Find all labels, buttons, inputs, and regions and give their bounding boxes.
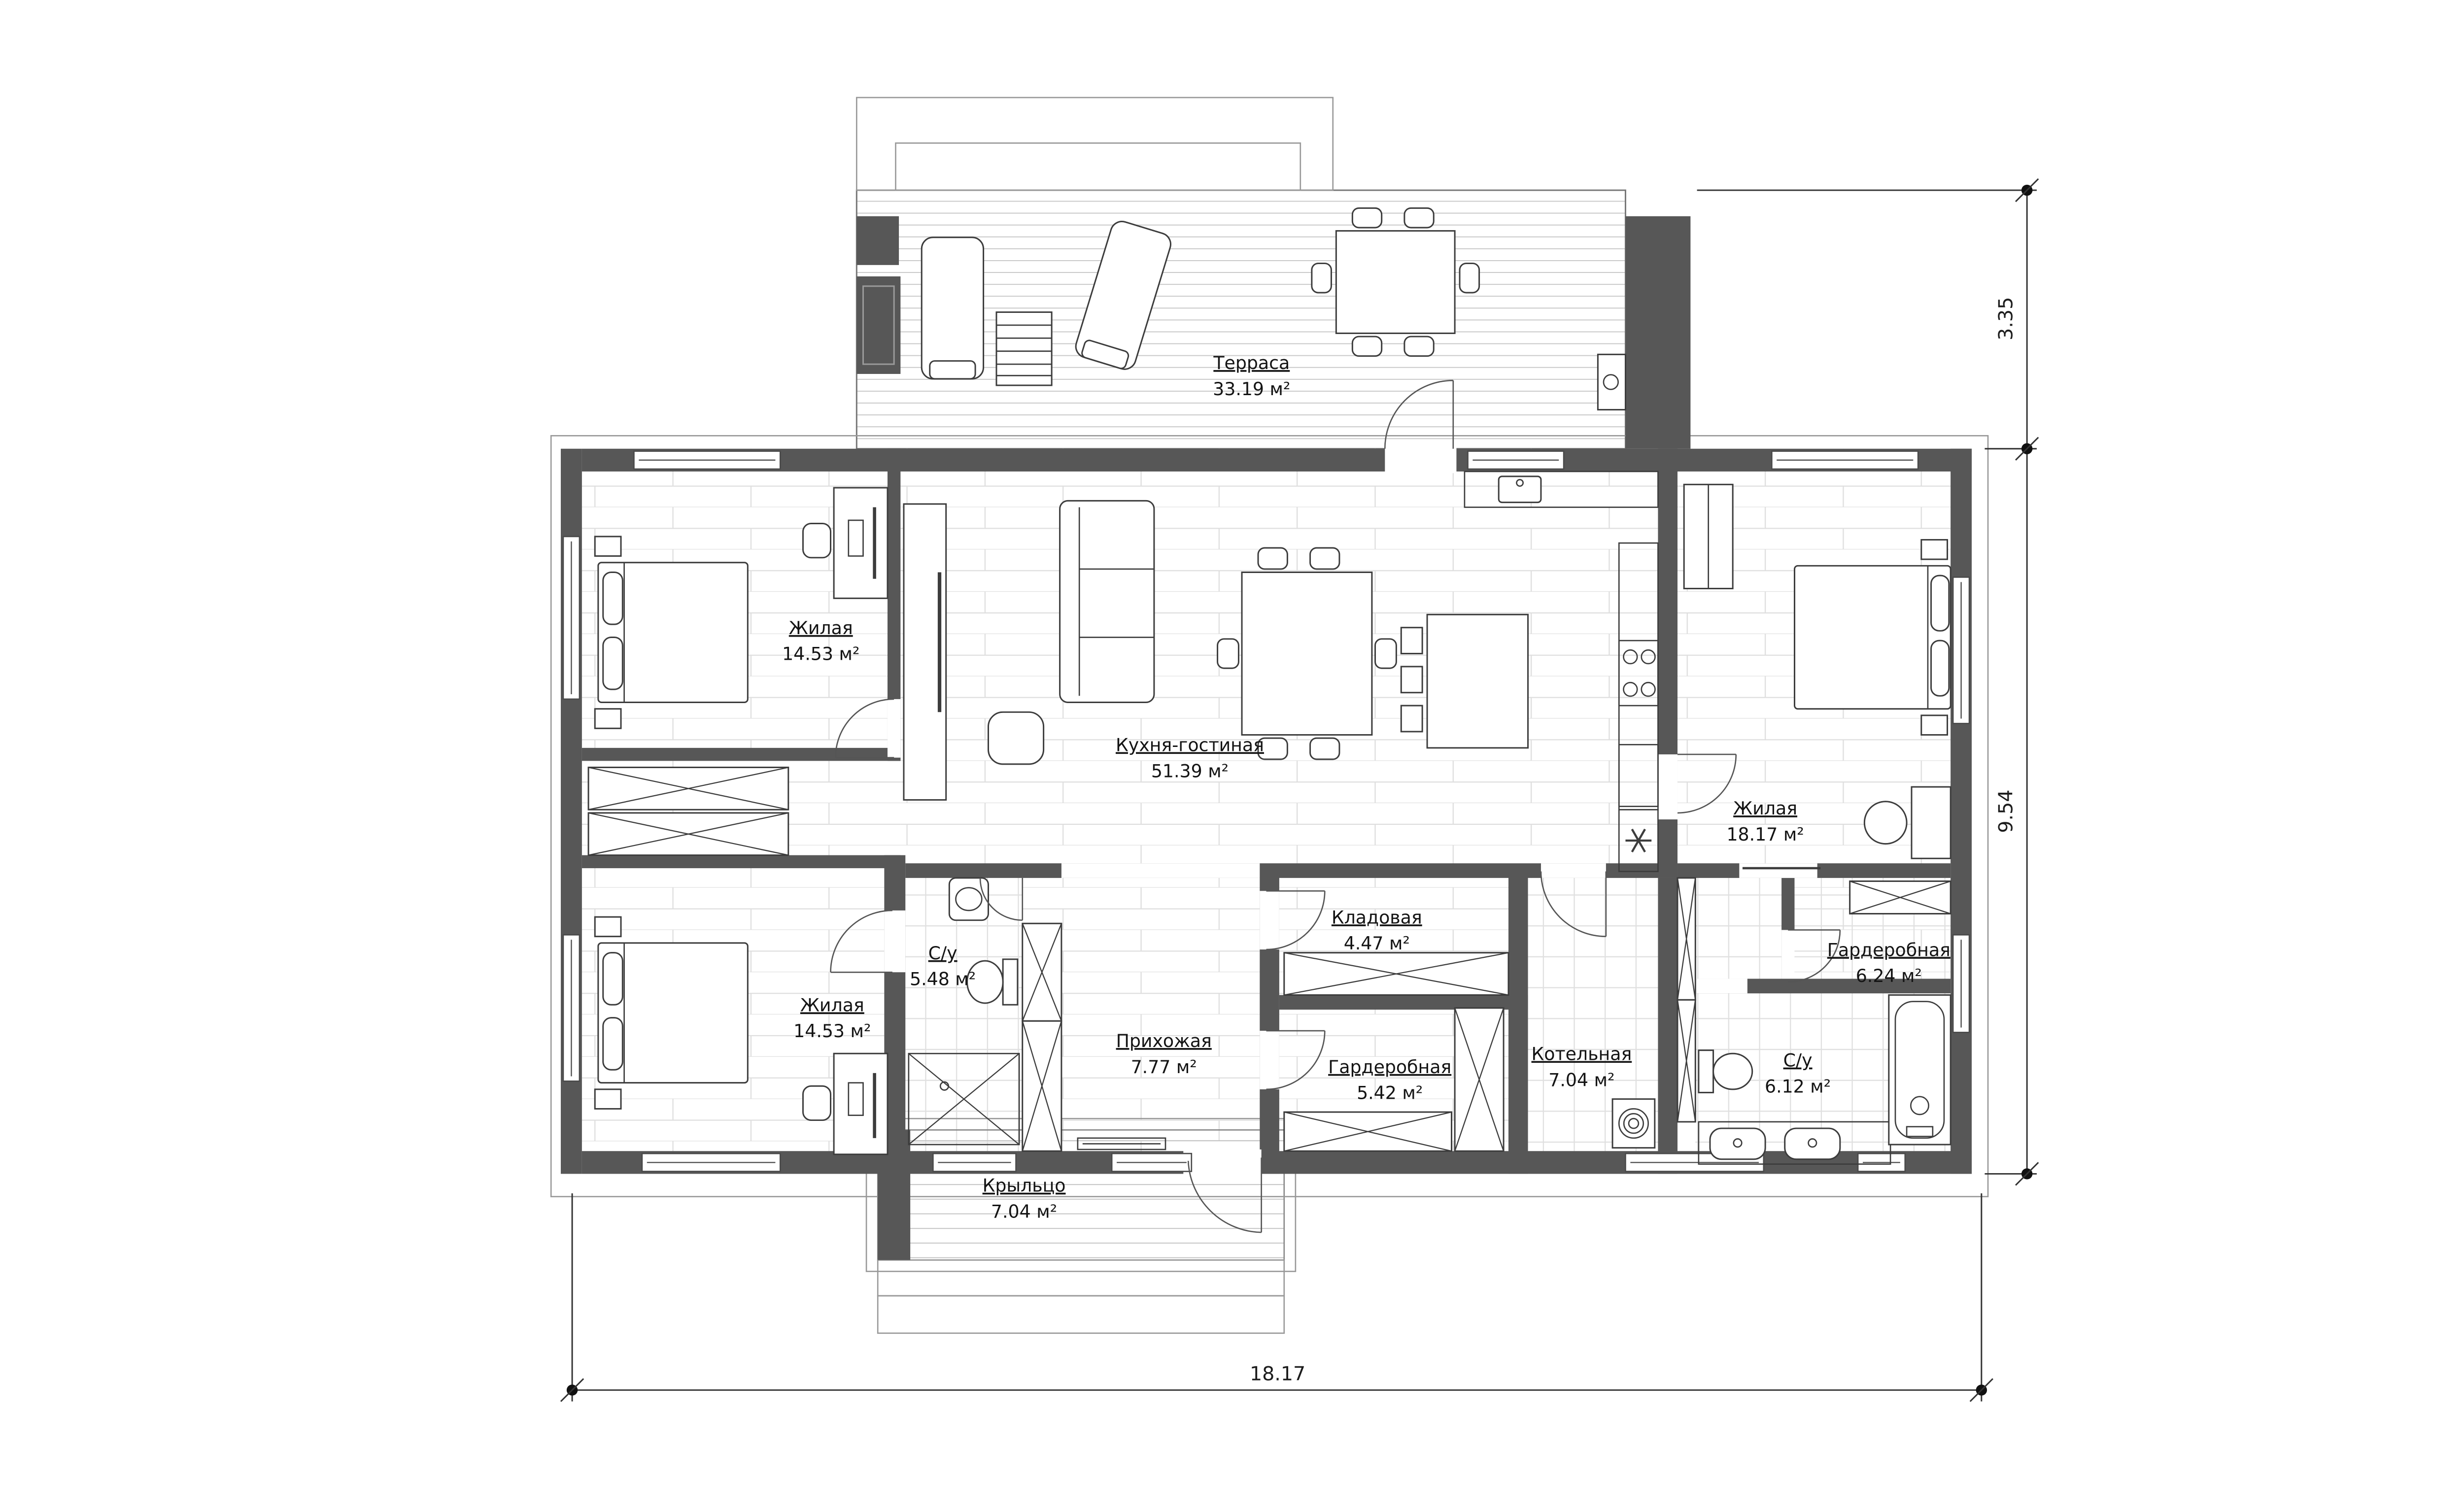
kitchen-island: [1401, 614, 1528, 748]
area-bathroom-big: 6.12 м²: [1765, 1076, 1831, 1097]
shaft-strip-bath2: [1677, 878, 1695, 1122]
dining-table: [1218, 548, 1397, 759]
label-wardrobe-1: Гардеробная: [1328, 1056, 1451, 1078]
label-terrace: Терраса: [1213, 352, 1290, 373]
label-bedroom-top-left: Жилая: [789, 617, 853, 639]
area-porch: 7.04 м²: [991, 1201, 1057, 1222]
area-wardrobe-1: 5.42 м²: [1357, 1082, 1423, 1104]
area-boiler-room: 7.04 м²: [1548, 1069, 1614, 1090]
label-bedroom-bottom-left: Жилая: [800, 994, 864, 1015]
terrace-right-wall: [1625, 216, 1690, 449]
boiler: [1612, 1099, 1655, 1148]
terrace-column: [856, 216, 899, 265]
area-bedroom-top-left: 14.53 м²: [782, 643, 859, 665]
storage-closet: [1284, 953, 1508, 995]
bed-2: [595, 917, 748, 1109]
dimension-right-top: 3.35: [1995, 297, 2018, 340]
area-bathroom-small: 5.48 м²: [910, 969, 976, 990]
label-boiler-room: Котельная: [1532, 1043, 1632, 1064]
dimension-bottom: 18.17: [1250, 1363, 1305, 1385]
label-hallway: Прихожая: [1116, 1030, 1212, 1051]
area-hallway: 7.77 м²: [1131, 1056, 1197, 1078]
area-bedroom-right: 18.17 м²: [1726, 824, 1804, 845]
label-bedroom-right: Жилая: [1733, 798, 1797, 819]
terrace-steps: [996, 312, 1052, 385]
sofa: [1060, 501, 1154, 702]
label-bathroom-big: С/у: [1783, 1050, 1813, 1071]
shelf-strip-bath-hall: [1023, 923, 1061, 1151]
area-kitchen-living: 51.39 м²: [1151, 760, 1229, 781]
floor-plan-page: Терраса 33.19 м² Жилая 14.53 м² Кухня-го…: [0, 0, 2464, 1486]
bathtub: [1889, 995, 1951, 1145]
dimension-right-main: 9.54: [1995, 790, 2018, 833]
label-storage: Кладовая: [1332, 907, 1422, 928]
label-porch: Крыльцо: [983, 1175, 1066, 1196]
armchair: [988, 712, 1043, 764]
area-wardrobe-2: 6.24 м²: [1856, 965, 1922, 986]
sun-lounger-1: [922, 237, 983, 379]
label-bathroom-small: С/у: [928, 943, 958, 964]
wardrobe2-closet: [1850, 881, 1951, 913]
bed-1: [595, 537, 748, 728]
label-wardrobe-2: Гардеробная: [1827, 939, 1951, 960]
area-bedroom-bottom-left: 14.53 м²: [793, 1020, 871, 1042]
label-kitchen-living: Кухня-гостиная: [1116, 734, 1264, 755]
area-storage: 4.47 м²: [1344, 933, 1410, 954]
area-terrace: 33.19 м²: [1213, 378, 1290, 400]
outdoor-sink-counter: [1598, 354, 1625, 409]
floor-plan-drawing: Терраса 33.19 м² Жилая 14.53 м² Кухня-го…: [0, 0, 2464, 1486]
terrace-dining-table: [1312, 208, 1479, 356]
